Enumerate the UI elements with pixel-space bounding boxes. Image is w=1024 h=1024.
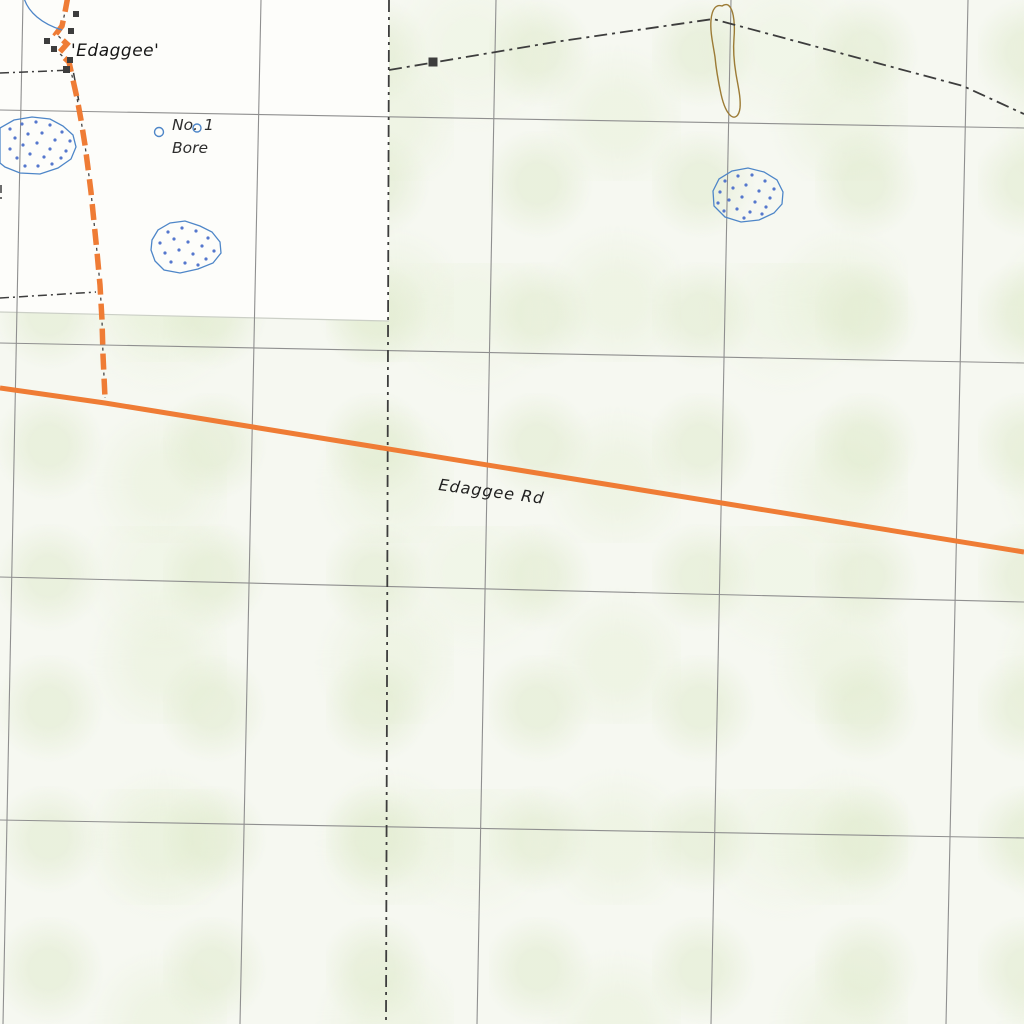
waterhole-east-outline [713, 168, 783, 222]
map-canvas[interactable]: 'Edaggee' No. 1 Bore Edaggee Rd [0, 0, 1024, 1024]
bore-label-num: 1 [204, 116, 214, 134]
boundary-dashdot-top [389, 19, 1024, 114]
building-square-boundary [429, 58, 438, 67]
waterhole-east-dots [716, 173, 775, 219]
grid-horizontal-4 [0, 820, 1024, 838]
grid-vertical-5 [946, 0, 968, 1024]
bore-label-no: No. [172, 116, 198, 134]
adjacent-sheet-area [0, 0, 389, 321]
grid-vertical-3 [477, 0, 496, 1024]
map-svg: 'Edaggee' No. 1 Bore Edaggee Rd [0, 0, 1024, 1024]
road-label: Edaggee Rd [437, 475, 545, 508]
grid-vertical-4 [711, 0, 731, 1024]
grid-horizontal-2 [0, 343, 1024, 363]
bore-label-word: Bore [172, 139, 208, 157]
road-edaggee [0, 388, 1024, 552]
grid-horizontal-3 [0, 577, 1024, 602]
homestead-label: 'Edaggee' [71, 41, 159, 61]
waterhole-east [713, 168, 783, 222]
